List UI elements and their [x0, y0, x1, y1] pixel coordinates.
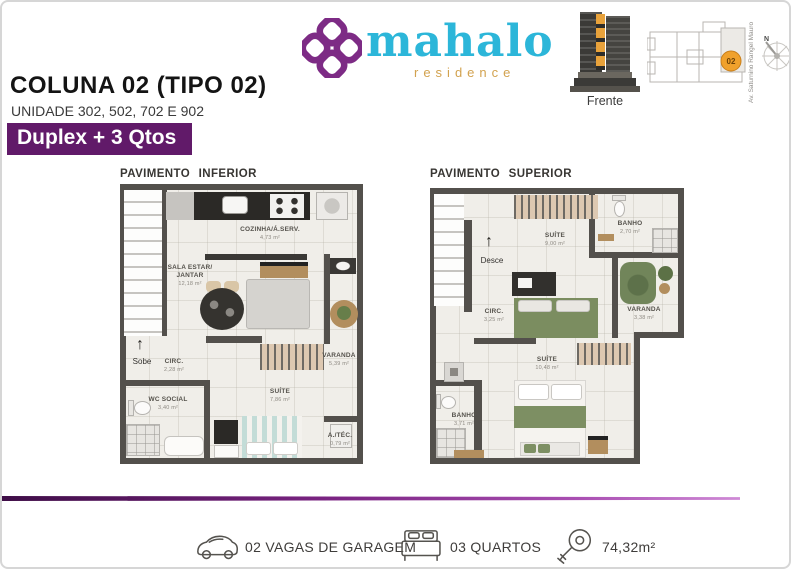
site-keyplan: 02: [647, 14, 749, 100]
tape-measure-icon: [556, 526, 596, 566]
room-label: CIRC. 2,28 m²: [154, 358, 194, 373]
plan-inferior-title: PAVIMENTO INFERIOR: [120, 168, 257, 180]
pillow: [551, 384, 582, 400]
stairs-up: [124, 190, 162, 336]
room-label: VARANDA 3,38 m²: [618, 306, 670, 321]
front-label: Frente: [570, 94, 640, 108]
room-label: SUÍTE 10,48 m²: [517, 356, 577, 371]
pillow: [518, 384, 549, 400]
plant: [337, 306, 351, 320]
grill: [330, 258, 356, 274]
room-label: SALA ESTAR/ JANTAR 12,18 m²: [160, 264, 220, 287]
armchair: [620, 262, 656, 304]
garage-label: 02 VAGAS DE GARAGEM: [245, 539, 416, 555]
stairs-direction-label: Desce: [472, 256, 512, 265]
bed-icon: [400, 528, 442, 564]
wardrobe: [514, 195, 598, 219]
desk: [512, 272, 556, 296]
pillow: [556, 300, 590, 312]
room-label: SUÍTE 7,86 m²: [250, 388, 310, 403]
total-area-label: 74,32m²: [602, 539, 655, 555]
room-label: BANHO 3,71 m²: [440, 412, 488, 427]
unit-marker: 02: [727, 57, 736, 66]
up-arrow-icon: ↑: [136, 337, 144, 353]
stool: [659, 283, 670, 294]
brand-tagline: residence: [414, 65, 515, 80]
room-label: BANHO 2,70 m²: [606, 220, 654, 235]
street-label: Av. Saturnino Rangel Mauro: [748, 16, 755, 108]
compass-north-label: N: [764, 36, 769, 43]
stairs-down: [434, 194, 464, 306]
wardrobe: [260, 344, 324, 370]
quatrefoil-logo-icon: [302, 18, 362, 78]
shower: [652, 228, 678, 253]
washer: [316, 192, 348, 220]
pillow: [273, 442, 298, 455]
bedrooms-label: 03 QUARTOS: [450, 539, 541, 555]
unit-subtitle: UNIDADE 302, 502, 702 E 902: [11, 103, 204, 119]
bathtub: [164, 436, 204, 456]
brand-wordmark: mahalo: [366, 16, 554, 67]
tv-console: [588, 436, 608, 454]
dining-table: [200, 288, 244, 330]
cushion: [538, 444, 550, 453]
building-illustration: [570, 12, 640, 92]
plan-inferior: ↑ Sobe COZINHA/Á.SERV.: [120, 184, 363, 464]
plan-superior-title: PAVIMENTO SUPERIOR: [430, 168, 572, 180]
room-label: CIRC. 3,25 m²: [472, 308, 516, 323]
bench: [454, 450, 484, 458]
toilet: [441, 396, 456, 409]
pillow: [246, 442, 271, 455]
plant: [658, 266, 673, 281]
blanket: [514, 406, 586, 428]
plan-superior: ↑ Desce SUÍTE 9,00: [430, 188, 684, 464]
stove: [270, 194, 304, 218]
room-label: COZINHA/Á.SERV. 4,73 m²: [225, 226, 315, 241]
divider-line: [2, 496, 740, 501]
sink: [222, 196, 248, 214]
nightstand: [214, 445, 239, 458]
room-label: VARANDA 5,39 m²: [318, 352, 360, 367]
shower: [126, 424, 160, 456]
room-label: SUÍTE 9,00 m²: [525, 232, 585, 247]
hamper: [444, 362, 464, 382]
pillow: [518, 300, 552, 312]
cushion: [524, 444, 536, 453]
up-arrow-icon: ↑: [485, 234, 493, 250]
car-icon: [194, 529, 240, 563]
compass-icon: N: [759, 32, 791, 76]
floorplan-sheet: mahalo residence COLUNA 02 (TIPO 02) UNI…: [0, 0, 791, 569]
wardrobe: [577, 343, 631, 365]
tv-console: [260, 262, 308, 278]
plan-type-badge: Duplex + 3 Qtos: [7, 123, 192, 155]
room-label: A./TÉC. 0,79 m²: [320, 432, 360, 447]
dresser: [214, 420, 238, 444]
room-label: WC SOCIAL 3,40 m²: [136, 396, 200, 411]
half-wall-counter: [205, 254, 307, 260]
toilet: [614, 201, 625, 217]
cabinet: [166, 192, 194, 220]
sofa: [246, 279, 310, 329]
column-title: COLUNA 02 (TIPO 02): [10, 72, 267, 100]
